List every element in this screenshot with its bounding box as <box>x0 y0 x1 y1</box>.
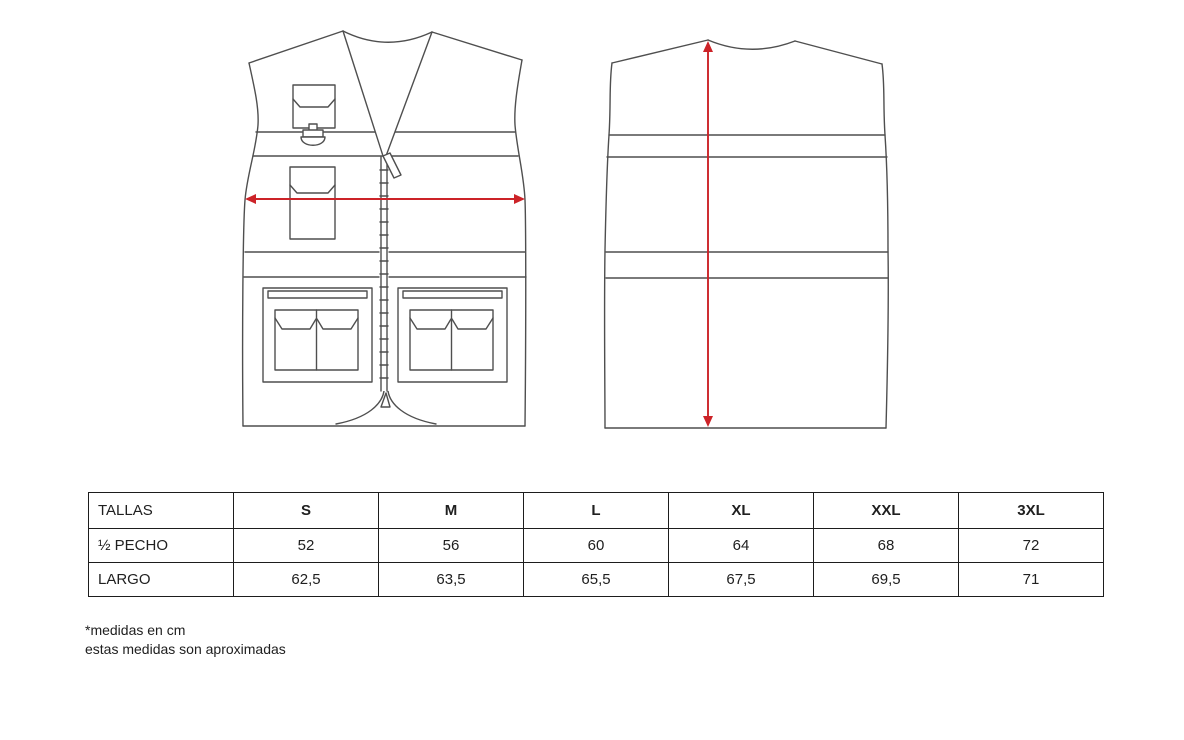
table-cell: 67,5 <box>669 563 814 597</box>
arrowhead-bottom <box>703 416 713 427</box>
front-left-shoulder <box>249 31 343 63</box>
footnote-line-2: estas medidas son aproximadas <box>85 640 286 659</box>
back-chest-stripe <box>607 135 887 157</box>
table-cell: 64 <box>669 529 814 563</box>
table-cell: 69,5 <box>814 563 959 597</box>
back-right-shoulder <box>795 41 882 64</box>
back-left-side-seam <box>605 63 612 428</box>
size-guide-page: TALLAS S M L XL XXL 3XL ½ PECHO 52 56 60… <box>0 0 1184 740</box>
arrowhead-left <box>245 194 256 204</box>
back-neck-curve <box>708 40 795 49</box>
table-cell: 63,5 <box>379 563 524 597</box>
back-left-shoulder <box>612 40 708 63</box>
table-cell: 60 <box>524 529 669 563</box>
clip-tab <box>303 130 323 137</box>
clip-ring <box>301 137 325 145</box>
vest-back-view <box>605 40 889 428</box>
front-right-shoulder <box>432 32 522 60</box>
size-column-header: 3XL <box>959 493 1104 529</box>
table-cell: 72 <box>959 529 1104 563</box>
arrowhead-top <box>703 41 713 52</box>
length-measure-arrow <box>703 41 713 427</box>
chest-pocket-flap <box>293 99 335 107</box>
front-right-side-seam <box>515 60 526 426</box>
arrowhead-right <box>514 194 525 204</box>
measurement-footnote: *medidas en cm estas medidas son aproxim… <box>85 621 286 659</box>
back-waist-stripe <box>606 252 888 278</box>
table-cell: 56 <box>379 529 524 563</box>
row-label: ½ PECHO <box>89 529 234 563</box>
size-column-header: L <box>524 493 669 529</box>
front-left-side-seam <box>243 63 259 426</box>
mid-pocket <box>290 167 335 239</box>
size-table-header-row: TALLAS S M L XL XXL 3XL <box>89 493 1104 529</box>
size-column-header: XL <box>669 493 814 529</box>
table-cell: 52 <box>234 529 379 563</box>
vest-front-view <box>243 31 526 426</box>
size-column-header: S <box>234 493 379 529</box>
back-right-side-seam <box>882 64 888 428</box>
size-column-header: M <box>379 493 524 529</box>
table-corner-label: TALLAS <box>89 493 234 529</box>
table-cell: 71 <box>959 563 1104 597</box>
length-row: LARGO 62,5 63,5 65,5 67,5 69,5 71 <box>89 563 1104 597</box>
half-chest-row: ½ PECHO 52 56 60 64 68 72 <box>89 529 1104 563</box>
table-cell: 62,5 <box>234 563 379 597</box>
vest-technical-drawing <box>0 0 1184 470</box>
size-column-header: XXL <box>814 493 959 529</box>
footnote-line-1: *medidas en cm <box>85 621 286 640</box>
table-cell: 68 <box>814 529 959 563</box>
cargo-pocket-left <box>263 288 372 382</box>
table-cell: 65,5 <box>524 563 669 597</box>
row-label: LARGO <box>89 563 234 597</box>
cargo-pocket-right <box>398 288 507 382</box>
size-table: TALLAS S M L XL XXL 3XL ½ PECHO 52 56 60… <box>88 492 1104 597</box>
